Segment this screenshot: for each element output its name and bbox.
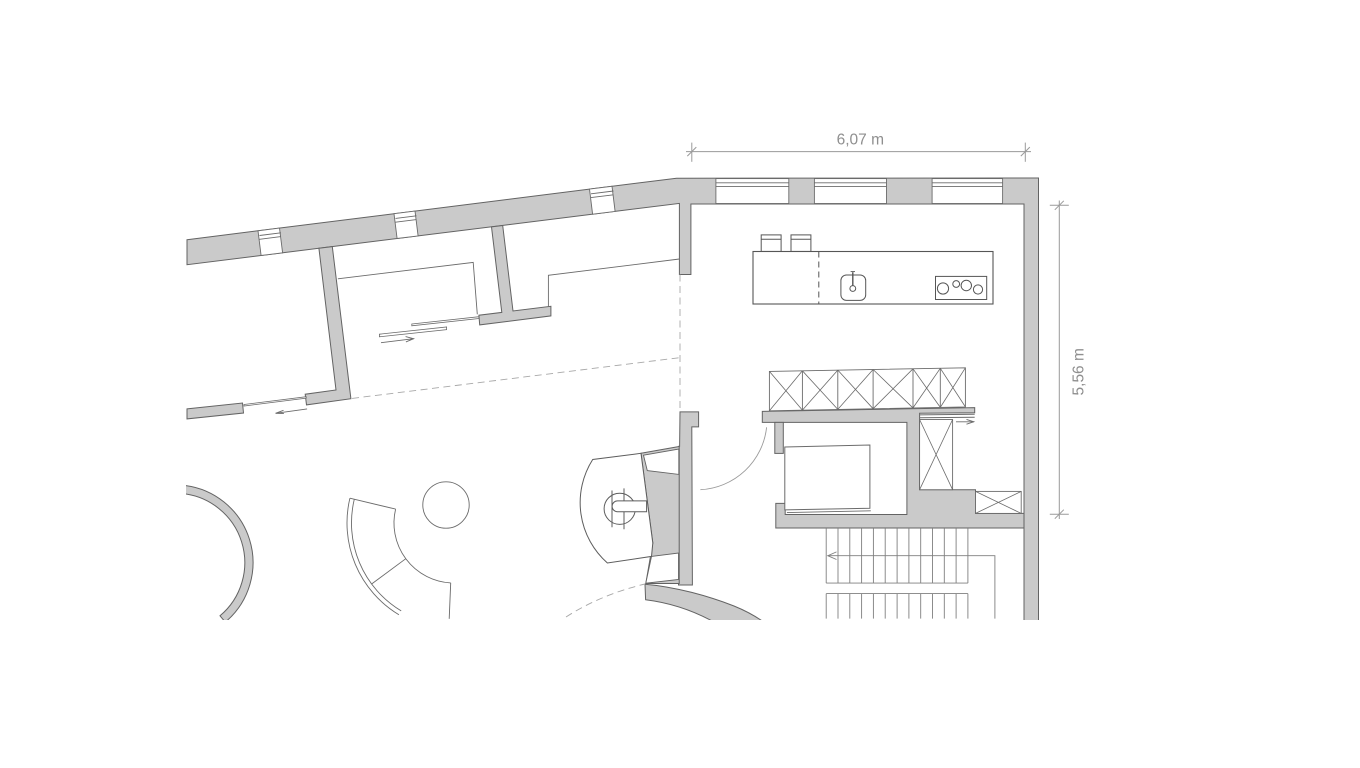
svg-text:6,07 m: 6,07 m [837, 132, 884, 149]
svg-text:5,56 m: 5,56 m [1071, 348, 1088, 395]
